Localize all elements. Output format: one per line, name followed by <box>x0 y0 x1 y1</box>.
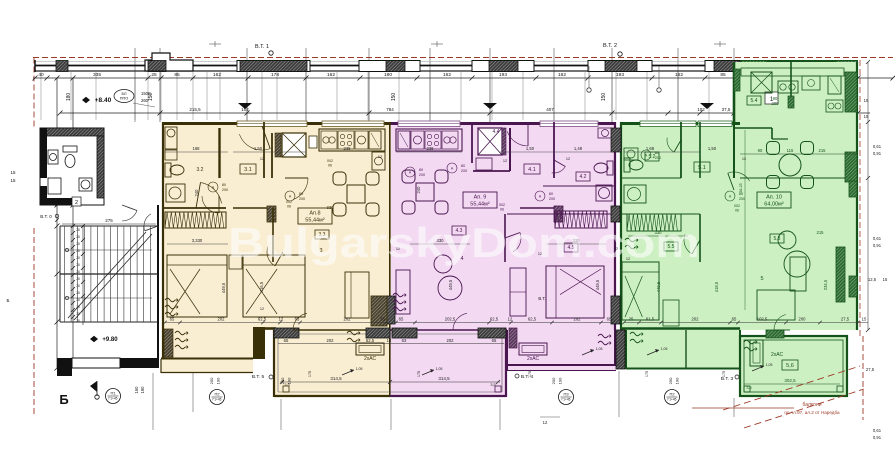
svg-text:200: 200 <box>772 101 780 106</box>
svg-text:15: 15 <box>864 98 869 103</box>
svg-text:314,5: 314,5 <box>330 376 342 381</box>
svg-text:12: 12 <box>378 155 382 159</box>
svg-text:260: 260 <box>141 98 149 103</box>
svg-text:200: 200 <box>799 317 807 322</box>
svg-text:12,5: 12,5 <box>868 277 877 282</box>
svg-text:449,5: 449,5 <box>595 279 600 290</box>
svg-text:25: 25 <box>629 317 634 322</box>
svg-text:002: 002 <box>286 200 292 204</box>
svg-text:63: 63 <box>295 317 300 322</box>
svg-text:2хАС: 2хАС <box>527 356 540 362</box>
svg-text:Г1+45: Г1+45 <box>213 398 222 402</box>
svg-text:115: 115 <box>787 148 794 153</box>
svg-text:200: 200 <box>551 377 556 384</box>
svg-text:12: 12 <box>503 159 507 163</box>
svg-text:5.3: 5.3 <box>774 236 781 242</box>
svg-text:15: 15 <box>883 277 888 282</box>
svg-text:28: 28 <box>76 235 80 239</box>
svg-text:28: 28 <box>76 291 80 295</box>
svg-text:175: 175 <box>308 371 312 377</box>
svg-text:449,5: 449,5 <box>656 281 661 292</box>
svg-text:162: 162 <box>675 72 683 78</box>
svg-text:449,5: 449,5 <box>221 282 226 293</box>
svg-text:416,5: 416,5 <box>259 281 264 292</box>
svg-text:0,61: 0,61 <box>873 236 882 241</box>
svg-text:80: 80 <box>461 164 465 168</box>
svg-text:002: 002 <box>327 159 333 163</box>
svg-text:162: 162 <box>443 72 451 78</box>
svg-text:28: 28 <box>76 228 80 232</box>
svg-text:В.Т. 5: В.Т. 5 <box>252 374 265 380</box>
svg-text:784: 784 <box>386 107 394 112</box>
svg-text:3.2: 3.2 <box>197 167 204 173</box>
svg-text:202,5: 202,5 <box>445 317 456 322</box>
svg-text:65: 65 <box>732 317 737 322</box>
svg-text:0,91: 0,91 <box>873 435 882 440</box>
svg-text:102: 102 <box>697 107 705 112</box>
svg-text:3,5: 3,5 <box>746 386 751 390</box>
svg-text:06: 06 <box>328 164 332 168</box>
svg-text:28: 28 <box>76 256 80 260</box>
svg-text:Г1+45: Г1+45 <box>668 398 677 402</box>
svg-text:80: 80 <box>222 183 226 187</box>
svg-text:28: 28 <box>76 284 80 288</box>
svg-text:по чл.97, ал.2 от Наредба: по чл.97, ал.2 от Наредба <box>784 410 840 415</box>
svg-text:65: 65 <box>284 338 289 343</box>
svg-text:5,6: 5,6 <box>786 363 794 369</box>
svg-text:238: 238 <box>344 146 352 151</box>
svg-text:15: 15 <box>864 114 869 119</box>
svg-text:28: 28 <box>76 277 80 281</box>
svg-text:200: 200 <box>739 197 745 201</box>
svg-text:1,05: 1,05 <box>356 367 363 371</box>
svg-text:150: 150 <box>391 93 397 102</box>
svg-text:65: 65 <box>399 317 404 322</box>
svg-text:215,5: 215,5 <box>189 107 201 112</box>
svg-text:180: 180 <box>66 93 72 102</box>
svg-text:238: 238 <box>427 146 435 151</box>
svg-text:0,61: 0,61 <box>873 428 882 433</box>
svg-text:178: 178 <box>271 72 279 78</box>
svg-text:175: 175 <box>722 371 726 377</box>
svg-text:балкони: балкони <box>802 402 821 408</box>
svg-text:37,5: 37,5 <box>722 107 731 112</box>
svg-text:002: 002 <box>734 204 740 208</box>
svg-text:80: 80 <box>655 151 659 155</box>
svg-text:2: 2 <box>75 200 78 206</box>
svg-text:BulgarskyDom.com: BulgarskyDom.com <box>228 219 700 266</box>
svg-text:65: 65 <box>492 338 497 343</box>
svg-text:202: 202 <box>447 338 455 343</box>
svg-text:314,5: 314,5 <box>438 376 450 381</box>
svg-text:ППО: ППО <box>120 97 128 101</box>
svg-text:85: 85 <box>720 72 726 78</box>
svg-text:5.4: 5.4 <box>751 98 758 104</box>
svg-text:200: 200 <box>461 169 467 173</box>
svg-text:Ап.8: Ап.8 <box>309 211 320 217</box>
svg-text:102,5: 102,5 <box>757 317 768 322</box>
svg-text:12: 12 <box>260 307 264 311</box>
svg-text:193: 193 <box>499 72 507 78</box>
svg-text:0,91: 0,91 <box>873 151 882 156</box>
svg-text:449,5: 449,5 <box>448 279 453 290</box>
svg-text:1,50: 1,50 <box>708 146 717 151</box>
svg-text:1,50: 1,50 <box>254 146 263 151</box>
svg-text:240: 240 <box>416 186 421 194</box>
svg-text:330: 330 <box>327 205 335 210</box>
svg-text:Б: Б <box>7 298 10 303</box>
svg-text:12: 12 <box>260 157 264 161</box>
svg-text:80: 80 <box>299 192 303 196</box>
svg-text:190: 190 <box>140 386 145 394</box>
svg-text:175: 175 <box>417 371 421 377</box>
svg-text:55,44м²: 55,44м² <box>470 202 490 208</box>
svg-text:5.1: 5.1 <box>698 165 706 171</box>
svg-text:3,330: 3,330 <box>192 238 203 243</box>
svg-text:БЛ: БЛ <box>122 92 127 96</box>
svg-text:В.Т.: В.Т. <box>538 296 545 301</box>
svg-text:190: 190 <box>558 377 563 384</box>
svg-text:25: 25 <box>151 72 157 78</box>
svg-text:В.Т. 2: В.Т. 2 <box>603 43 617 49</box>
svg-text:06: 06 <box>500 208 504 212</box>
svg-text:65: 65 <box>170 317 175 322</box>
svg-text:162: 162 <box>558 72 566 78</box>
svg-text:15: 15 <box>862 317 867 322</box>
svg-text:160: 160 <box>134 386 139 394</box>
svg-text:П2: П2 <box>669 392 675 397</box>
svg-text:202: 202 <box>344 317 352 322</box>
svg-text:63: 63 <box>402 338 407 343</box>
svg-text:193: 193 <box>616 72 624 78</box>
svg-text:Г1+45: Г1+45 <box>109 397 118 401</box>
svg-text:65: 65 <box>381 317 386 322</box>
svg-text:175: 175 <box>645 371 649 377</box>
svg-text:28: 28 <box>76 263 80 267</box>
svg-text:0,91: 0,91 <box>873 243 882 248</box>
svg-text:62,5: 62,5 <box>258 317 267 322</box>
svg-text:234,5: 234,5 <box>823 279 828 290</box>
svg-text:40: 40 <box>38 72 44 78</box>
svg-text:12: 12 <box>543 420 548 425</box>
svg-text:27,5: 27,5 <box>866 367 875 372</box>
svg-text:0,61: 0,61 <box>873 144 882 149</box>
svg-text:200: 200 <box>668 377 673 384</box>
svg-text:80: 80 <box>549 192 553 196</box>
svg-text:3.1: 3.1 <box>244 167 252 173</box>
svg-text:4.4: 4.4 <box>493 129 500 135</box>
svg-text:190: 190 <box>675 377 680 384</box>
svg-text:61,5: 61,5 <box>646 317 655 322</box>
svg-text:15: 15 <box>10 170 16 175</box>
svg-text:200: 200 <box>209 377 214 384</box>
svg-text:85: 85 <box>174 72 180 78</box>
svg-text:202: 202 <box>218 317 226 322</box>
svg-text:12: 12 <box>566 157 570 161</box>
svg-text:175: 175 <box>528 371 532 377</box>
svg-text:65: 65 <box>607 317 612 322</box>
svg-text:200: 200 <box>549 197 555 201</box>
svg-text:275: 275 <box>105 218 113 223</box>
svg-text:200: 200 <box>222 188 228 192</box>
svg-text:335: 335 <box>93 72 101 78</box>
svg-text:В.Т. 1: В.Т. 1 <box>255 44 269 50</box>
svg-text:150С: 150С <box>141 91 151 96</box>
svg-text:202: 202 <box>574 317 582 322</box>
svg-text:190: 190 <box>216 377 221 384</box>
svg-text:28: 28 <box>76 242 80 246</box>
svg-text:80: 80 <box>419 168 423 172</box>
svg-text:28: 28 <box>76 249 80 253</box>
svg-text:150: 150 <box>601 93 607 102</box>
svg-text:200: 200 <box>280 377 285 384</box>
svg-text:64,00м²: 64,00м² <box>764 202 784 208</box>
svg-text:Г1+45: Г1+45 <box>562 398 571 402</box>
svg-text:5: 5 <box>760 276 763 282</box>
svg-text:90: 90 <box>758 148 763 153</box>
svg-text:162: 162 <box>327 72 335 78</box>
svg-text:1,05: 1,05 <box>661 347 668 351</box>
svg-text:162: 162 <box>213 72 221 78</box>
svg-text:+8.40: +8.40 <box>95 97 112 104</box>
svg-text:П1: П1 <box>110 391 116 396</box>
svg-text:202: 202 <box>327 338 335 343</box>
svg-text:002: 002 <box>499 203 505 207</box>
svg-text:215: 215 <box>819 148 827 153</box>
svg-text:80: 80 <box>739 192 743 196</box>
svg-text:В.Т. 0: В.Т. 0 <box>40 214 52 219</box>
svg-text:П3: П3 <box>563 392 569 397</box>
svg-text:28: 28 <box>76 298 80 302</box>
svg-text:1,48: 1,48 <box>574 146 583 151</box>
svg-text:4.2: 4.2 <box>580 174 587 180</box>
svg-text:190: 190 <box>287 377 292 384</box>
svg-text:12: 12 <box>387 338 392 343</box>
svg-text:202: 202 <box>692 317 700 322</box>
svg-text:06: 06 <box>287 205 291 209</box>
svg-text:4.1: 4.1 <box>528 167 536 173</box>
svg-text:15: 15 <box>10 178 16 183</box>
svg-text:Б: Б <box>59 392 68 407</box>
svg-text:1,05: 1,05 <box>596 347 603 351</box>
svg-text:180: 180 <box>384 72 392 78</box>
svg-text:200: 200 <box>655 156 661 160</box>
svg-text:62,5: 62,5 <box>366 338 375 343</box>
svg-text:2хАС: 2хАС <box>771 352 784 358</box>
svg-text:200: 200 <box>299 197 305 201</box>
svg-text:12: 12 <box>742 157 746 161</box>
svg-text:62,5: 62,5 <box>490 317 499 322</box>
svg-text:168: 168 <box>193 146 201 151</box>
svg-text:06: 06 <box>735 209 739 213</box>
svg-text:62,5: 62,5 <box>528 317 537 322</box>
svg-text:+9.80: +9.80 <box>102 337 118 343</box>
svg-text:418,5: 418,5 <box>714 281 719 292</box>
svg-text:1,05: 1,05 <box>436 367 443 371</box>
svg-text:200: 200 <box>419 173 425 177</box>
svg-text:1,05: 1,05 <box>766 363 773 367</box>
svg-text:Ап. 9: Ап. 9 <box>474 195 487 201</box>
svg-text:27,5: 27,5 <box>841 317 850 322</box>
svg-text:Ап. 10: Ап. 10 <box>766 195 782 201</box>
svg-text:302,5: 302,5 <box>784 378 796 383</box>
svg-text:240: 240 <box>194 189 199 197</box>
svg-text:1,50: 1,50 <box>526 146 535 151</box>
svg-text:215: 215 <box>817 230 825 235</box>
svg-text:407: 407 <box>546 107 554 112</box>
svg-text:2хАС: 2хАС <box>364 356 377 362</box>
svg-text:П2: П2 <box>214 392 220 397</box>
